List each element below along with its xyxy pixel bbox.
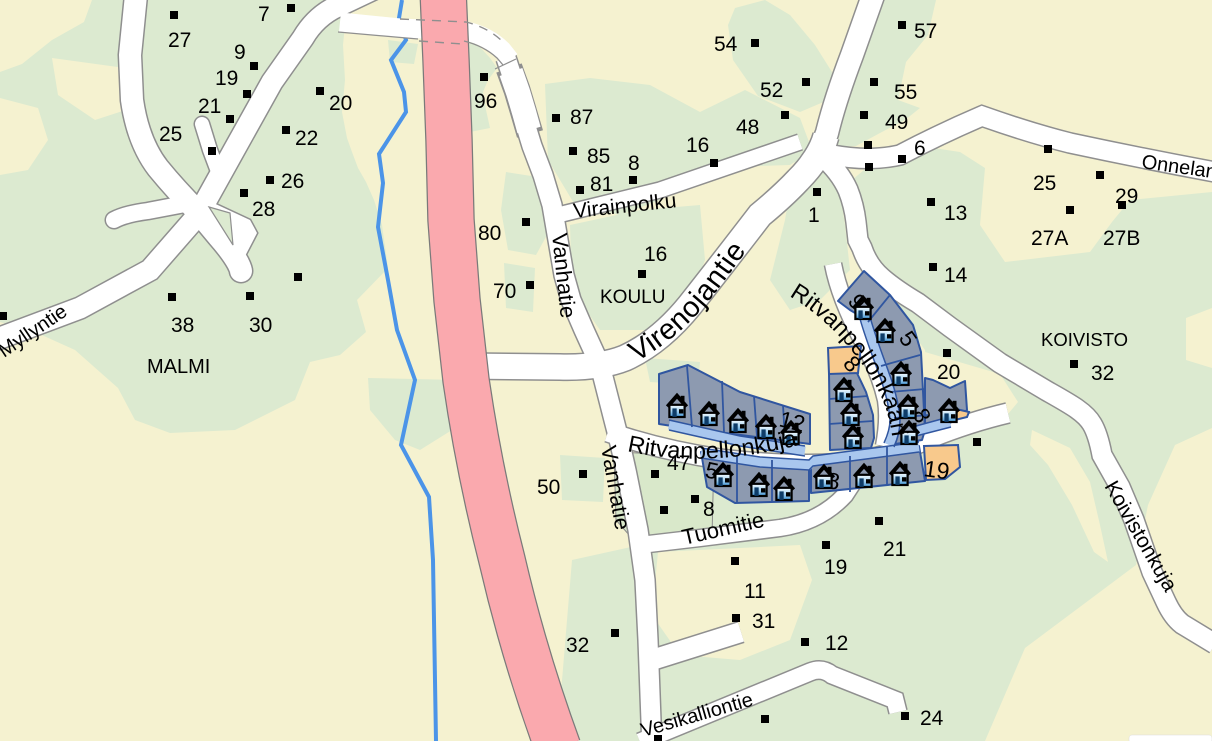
svg-text:32: 32 xyxy=(566,634,589,657)
svg-text:22: 22 xyxy=(295,127,318,150)
svg-text:32: 32 xyxy=(1091,362,1114,385)
svg-text:80: 80 xyxy=(478,222,501,245)
svg-text:20: 20 xyxy=(329,92,352,115)
svg-text:25: 25 xyxy=(1033,172,1056,195)
svg-text:KOIVISTO: KOIVISTO xyxy=(1041,329,1128,350)
svg-text:KOULU: KOULU xyxy=(600,287,665,308)
svg-text:81: 81 xyxy=(590,173,613,196)
svg-text:30: 30 xyxy=(249,314,272,337)
svg-text:6: 6 xyxy=(914,137,926,160)
svg-text:9: 9 xyxy=(234,41,246,64)
svg-text:27B: 27B xyxy=(1103,227,1140,250)
svg-text:70: 70 xyxy=(493,280,516,303)
svg-text:38: 38 xyxy=(171,314,194,337)
svg-text:21: 21 xyxy=(883,538,906,561)
svg-text:87: 87 xyxy=(570,106,593,129)
svg-text:28: 28 xyxy=(252,198,275,221)
svg-text:24: 24 xyxy=(920,707,944,730)
svg-text:MALMI: MALMI xyxy=(147,356,210,378)
svg-text:12: 12 xyxy=(825,632,848,655)
svg-text:29: 29 xyxy=(1115,185,1138,208)
svg-text:49: 49 xyxy=(885,111,908,134)
svg-text:85: 85 xyxy=(587,145,610,168)
svg-text:21: 21 xyxy=(198,95,221,118)
svg-text:25: 25 xyxy=(159,123,182,146)
svg-text:50: 50 xyxy=(537,476,560,499)
svg-text:8: 8 xyxy=(628,152,640,175)
svg-text:52: 52 xyxy=(760,79,783,102)
svg-text:14: 14 xyxy=(944,264,968,287)
svg-text:19: 19 xyxy=(922,455,951,484)
svg-text:31: 31 xyxy=(752,610,775,633)
svg-text:57: 57 xyxy=(914,20,937,43)
svg-text:55: 55 xyxy=(894,81,917,104)
svg-text:54: 54 xyxy=(714,33,738,56)
svg-text:19: 19 xyxy=(215,67,238,90)
svg-text:26: 26 xyxy=(281,170,304,193)
svg-text:27A: 27A xyxy=(1031,227,1068,250)
svg-text:48: 48 xyxy=(736,116,759,139)
svg-text:16: 16 xyxy=(644,243,667,266)
svg-text:11: 11 xyxy=(744,580,766,603)
svg-text:7: 7 xyxy=(258,3,270,26)
svg-text:13: 13 xyxy=(944,202,967,225)
svg-text:1: 1 xyxy=(808,204,820,227)
svg-text:27: 27 xyxy=(168,29,191,52)
svg-text:20: 20 xyxy=(937,361,960,384)
svg-text:16: 16 xyxy=(686,134,709,157)
svg-text:19: 19 xyxy=(824,556,847,579)
svg-text:96: 96 xyxy=(474,90,497,113)
